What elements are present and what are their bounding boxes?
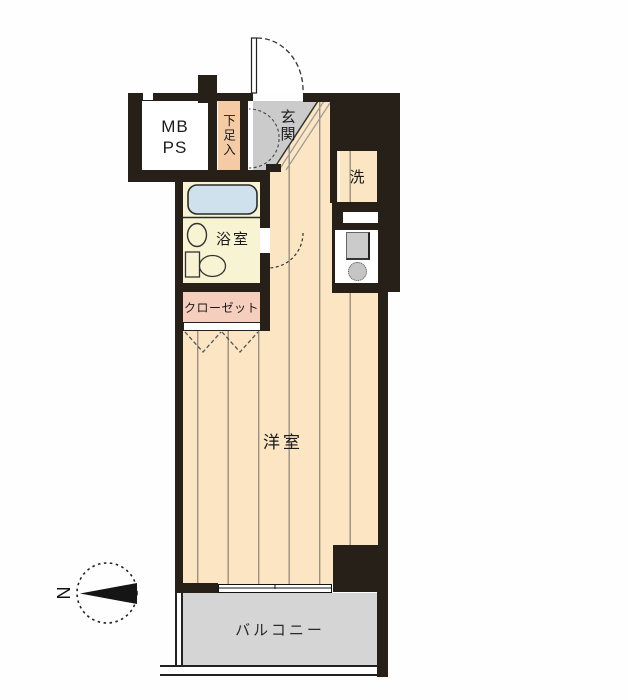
floor-plan: MB PS 下足入 玄関 洗 浴室 クローゼット 洋室 バルコニー N xyxy=(0,0,628,700)
entrance-door-swing-area xyxy=(252,38,303,91)
wall-left-lower xyxy=(175,181,183,593)
wall-bottom-left xyxy=(175,583,218,593)
wall-bottom-right xyxy=(333,545,388,592)
wall-below-kitchen xyxy=(332,283,378,293)
wall-left-upper xyxy=(128,93,142,181)
wall-below-meter xyxy=(128,170,265,182)
bathroom-door-opening xyxy=(260,228,270,253)
toilet-bowl xyxy=(200,256,226,277)
compass-north-label: N xyxy=(53,581,75,605)
laundry-label: 洗 xyxy=(336,150,378,203)
wall-meter-right xyxy=(208,101,217,172)
toilet-tank xyxy=(186,252,200,277)
wall-closet-right xyxy=(260,292,270,331)
shoe-cabinet-label: 下足入 xyxy=(217,103,240,169)
wall-kitchen-left xyxy=(332,230,335,283)
wall-above-closet xyxy=(175,283,270,292)
compass-needle xyxy=(80,583,137,604)
bathroom-label: 浴室 xyxy=(205,228,261,248)
shoe-cabinet-doors xyxy=(248,101,253,170)
balcony-label: バルコニー xyxy=(183,593,377,666)
washbasin xyxy=(188,224,207,247)
entrance-door-leaf xyxy=(252,38,257,93)
wall-top-pillar xyxy=(198,75,217,103)
wall-shoe-right xyxy=(240,101,248,172)
closet-label: クローゼット xyxy=(183,292,260,322)
meter-box-label: MB PS xyxy=(142,110,208,164)
entrance-label: 玄関 xyxy=(276,101,298,151)
laundry-opening-slot xyxy=(343,212,378,223)
wall-notch xyxy=(143,93,153,100)
western-room-label: 洋室 xyxy=(250,429,316,451)
bathtub xyxy=(188,185,257,214)
wall-balcony-right xyxy=(377,592,388,677)
wall-right-upper xyxy=(378,93,400,292)
